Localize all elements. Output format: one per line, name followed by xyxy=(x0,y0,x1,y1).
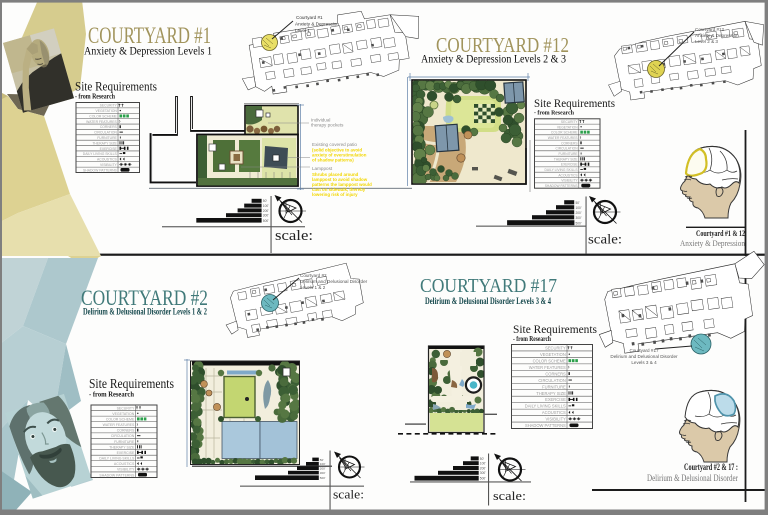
svg-text:500': 500' xyxy=(480,477,486,481)
svg-text:VEGETATION: VEGETATION xyxy=(557,125,578,129)
svg-text:EXERCISE: EXERCISE xyxy=(100,147,118,151)
svg-text:Delirium & Delusional Disorder: Delirium & Delusional Disorder Levels 3 … xyxy=(425,297,551,307)
svg-text:ACOUSTICS: ACOUSTICS xyxy=(114,462,135,466)
svg-text:DAILY LIVING SKILLS: DAILY LIVING SKILLS xyxy=(545,168,579,172)
svg-text:SHADOW PATTERNS: SHADOW PATTERNS xyxy=(525,423,566,428)
svg-text:500': 500' xyxy=(576,221,582,225)
svg-text:- from Research: - from Research xyxy=(89,390,135,399)
svg-text:500': 500' xyxy=(263,219,269,223)
svg-text:Anxiety & Depression Levels 2: Anxiety & Depression Levels 2 & 3 xyxy=(421,54,566,66)
svg-text:Delirium & Delusional Disorder: Delirium & Delusional Disorder Levels 1 … xyxy=(83,308,207,318)
svg-text:CORNERS: CORNERS xyxy=(100,125,118,129)
svg-text:CIRCULATION: CIRCULATION xyxy=(538,378,565,383)
svg-text:COLOR SCHEME: COLOR SCHEME xyxy=(106,418,135,422)
svg-text:Courtyard #2: Courtyard #2 xyxy=(300,273,327,278)
svg-text:THERAPY SIZE: THERAPY SIZE xyxy=(536,391,566,396)
svg-text:Delirium & Delusional Disorder: Delirium & Delusional Disorder xyxy=(647,473,738,483)
svg-text:WATER FEATURES: WATER FEATURES xyxy=(103,423,135,427)
svg-text:Courtyard #1 & 12: Courtyard #1 & 12 xyxy=(696,228,745,238)
svg-text:VEGETATION: VEGETATION xyxy=(95,109,117,113)
svg-text:SECURITY: SECURITY xyxy=(561,120,578,124)
svg-text:THERAPY SIZE: THERAPY SIZE xyxy=(554,157,579,161)
svg-text:WATER FEATURES: WATER FEATURES xyxy=(529,365,566,370)
svg-text:50': 50' xyxy=(320,458,324,462)
svg-text:VEGETATION: VEGETATION xyxy=(540,352,566,357)
svg-text:200': 200' xyxy=(263,209,269,213)
svg-text:THERAPY SIZE: THERAPY SIZE xyxy=(92,141,117,145)
svg-text:scale:: scale: xyxy=(493,488,526,503)
svg-text:Delirium and Delusional Disord: Delirium and Delusional Disorder xyxy=(610,354,678,359)
svg-text:COURTYARD #17: COURTYARD #17 xyxy=(420,275,557,297)
svg-text:Courtyard #12: Courtyard #12 xyxy=(695,27,725,32)
svg-text:Anxiety & Depression: Anxiety & Depression xyxy=(695,33,739,38)
svg-text:Site Requirements: Site Requirements xyxy=(513,322,597,336)
svg-text:50': 50' xyxy=(480,457,485,461)
svg-text:FURNITURE: FURNITURE xyxy=(542,384,566,389)
svg-text:scale:: scale: xyxy=(333,487,364,502)
svg-text:FURNITURE: FURNITURE xyxy=(114,440,135,444)
svg-text:Level 2 & 3: Level 2 & 3 xyxy=(695,39,718,44)
svg-text:SECURITY: SECURITY xyxy=(545,346,566,351)
svg-text:50': 50' xyxy=(263,199,268,203)
svg-text:FURNITURE: FURNITURE xyxy=(559,152,579,156)
svg-text:Anxiety & Depression: Anxiety & Depression xyxy=(295,22,339,27)
svg-text:300': 300' xyxy=(576,216,582,220)
svg-text:therapy pockets: therapy pockets xyxy=(311,123,344,128)
svg-text:CIRCULATION: CIRCULATION xyxy=(94,131,117,135)
svg-text:Courtyard #1: Courtyard #1 xyxy=(296,15,323,20)
svg-text:50': 50' xyxy=(576,201,581,205)
svg-text:Courtyard #2 & 17 :: Courtyard #2 & 17 : xyxy=(684,462,738,472)
svg-text:lowering risk of injury: lowering risk of injury xyxy=(312,192,358,197)
svg-text:COLOR SCHEME: COLOR SCHEME xyxy=(551,131,579,135)
svg-text:100': 100' xyxy=(263,204,269,208)
svg-text:VEGETATION: VEGETATION xyxy=(112,412,135,416)
svg-text:ACOUSTICS: ACOUSTICS xyxy=(558,173,578,177)
svg-text:100': 100' xyxy=(320,462,326,466)
svg-text:EXERCISE: EXERCISE xyxy=(117,451,135,455)
svg-text:EXERCISE: EXERCISE xyxy=(545,397,566,402)
svg-text:Courtyard #17: Courtyard #17 xyxy=(629,348,659,353)
svg-text:200': 200' xyxy=(576,211,582,215)
svg-text:300': 300' xyxy=(320,471,326,475)
svg-text:scale:: scale: xyxy=(588,233,622,248)
svg-text:Levels 3 & 4: Levels 3 & 4 xyxy=(631,360,657,365)
svg-text:Level 1: Level 1 xyxy=(295,28,310,33)
svg-text:SECURITY: SECURITY xyxy=(100,104,118,108)
svg-text:VISIBILITY: VISIBILITY xyxy=(561,179,578,183)
svg-text:scale:: scale: xyxy=(275,228,313,244)
svg-text:DAILY LIVING SKILLS: DAILY LIVING SKILLS xyxy=(83,152,118,156)
svg-text:ACOUSTICS: ACOUSTICS xyxy=(97,158,118,162)
svg-text:WATER FEATURES: WATER FEATURES xyxy=(86,120,117,124)
svg-text:100': 100' xyxy=(480,462,486,466)
svg-text:Anxiety & Depression Levels 1: Anxiety & Depression Levels 1 xyxy=(84,44,212,58)
svg-text:FURNITURE: FURNITURE xyxy=(97,136,117,140)
svg-text:COURTYARD #2: COURTYARD #2 xyxy=(81,285,208,310)
svg-text:VISIBILITY: VISIBILITY xyxy=(100,163,118,167)
svg-text:SHADOW PATTERNS: SHADOW PATTERNS xyxy=(545,184,579,188)
svg-text:DAILY LIVING SKILLS: DAILY LIVING SKILLS xyxy=(525,404,566,409)
svg-text:Existing covered patio: Existing covered patio xyxy=(312,142,357,147)
svg-text:300': 300' xyxy=(263,214,269,218)
svg-text:Site Requirements: Site Requirements xyxy=(534,98,616,110)
svg-text:100': 100' xyxy=(576,206,582,210)
svg-text:SHADOW PATTERNS: SHADOW PATTERNS xyxy=(99,473,135,477)
svg-text:ACOUSTICS: ACOUSTICS xyxy=(542,410,566,415)
svg-text:200': 200' xyxy=(320,467,326,471)
svg-text:SHADOW PATTERNS: SHADOW PATTERNS xyxy=(83,168,118,172)
svg-text:Delirium and Delusional Disord: Delirium and Delusional Disorder xyxy=(300,279,368,284)
svg-text:VISIBILITY: VISIBILITY xyxy=(117,468,135,472)
svg-text:EXERCISE: EXERCISE xyxy=(561,163,578,167)
svg-text:- from Research: - from Research xyxy=(534,110,574,117)
svg-text:CORNERS: CORNERS xyxy=(117,429,135,433)
svg-text:- from Research: - from Research xyxy=(75,92,116,101)
svg-text:VISIBILITY: VISIBILITY xyxy=(546,417,567,422)
svg-text:WATER FEATURES: WATER FEATURES xyxy=(548,136,579,140)
svg-text:CORNERS: CORNERS xyxy=(545,371,566,376)
svg-text:Levels 1 & 2: Levels 1 & 2 xyxy=(300,285,326,290)
svg-text:- from Research: - from Research xyxy=(513,335,551,343)
svg-text:COLOR SCHEME: COLOR SCHEME xyxy=(533,358,566,363)
svg-text:of shadow patterns): of shadow patterns) xyxy=(312,158,354,163)
svg-text:CIRCULATION: CIRCULATION xyxy=(111,434,135,438)
svg-text:SECURITY: SECURITY xyxy=(117,406,135,410)
svg-text:Lamppost: Lamppost xyxy=(312,166,333,171)
svg-text:500': 500' xyxy=(320,476,326,480)
svg-text:Anxiety & Depression: Anxiety & Depression xyxy=(680,238,746,248)
svg-text:CORNERS: CORNERS xyxy=(561,141,578,145)
svg-text:THERAPY SIZE: THERAPY SIZE xyxy=(109,445,135,449)
svg-text:DAILY LIVING SKILLS: DAILY LIVING SKILLS xyxy=(99,457,135,461)
svg-text:CIRCULATION: CIRCULATION xyxy=(555,147,578,151)
svg-text:300': 300' xyxy=(480,471,486,475)
svg-text:200': 200' xyxy=(480,466,486,470)
svg-text:COLOR SCHEME: COLOR SCHEME xyxy=(89,114,117,118)
